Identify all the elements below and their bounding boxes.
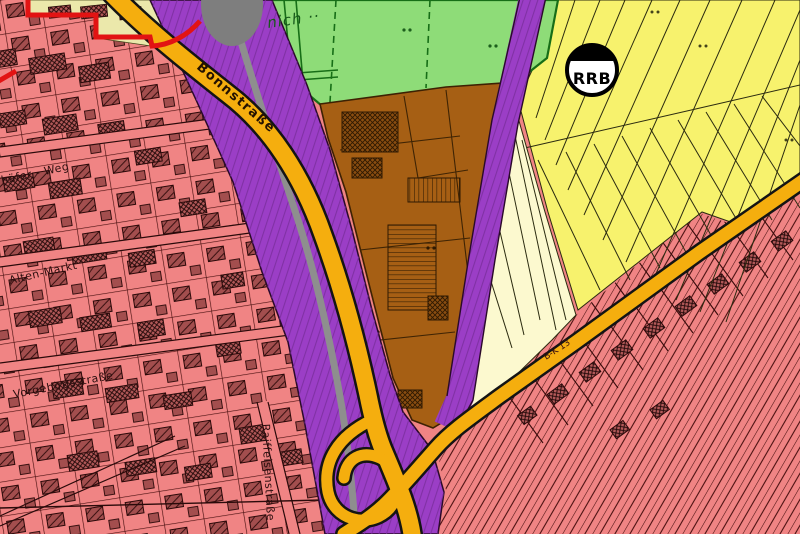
- map-image: RRB Bonnstraße Vorgebirgsstraße Raiffeis…: [0, 0, 800, 534]
- rrb-label: RRB: [573, 69, 611, 88]
- zoning-map-canvas[interactable]: RRB Bonnstraße Vorgebirgsstraße Raiffeis…: [0, 0, 800, 534]
